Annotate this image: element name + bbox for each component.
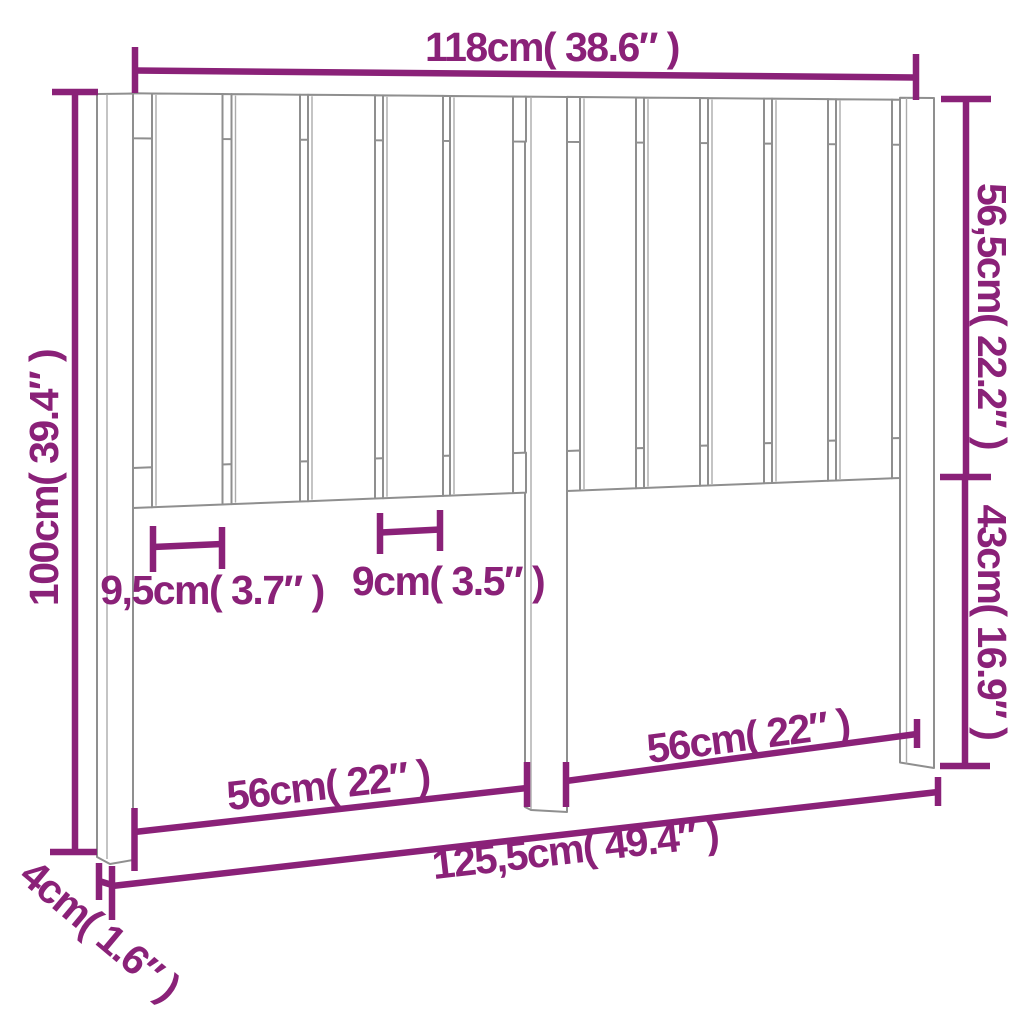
dim-line-top-width — [135, 71, 916, 78]
slat-gap-bottom-notch — [700, 446, 708, 486]
slat-gap-bottom-notch — [636, 448, 644, 488]
slat-gap-bottom-notch — [567, 451, 580, 492]
slat-gap-bottom-notch — [300, 461, 308, 501]
slat-gap-bottom-notch — [223, 464, 232, 504]
headboard-slat — [708, 98, 764, 485]
slats-layer — [133, 93, 900, 508]
slat-gap-top-notch — [443, 96, 450, 141]
headboard-slat — [152, 94, 223, 508]
slat-gap-bottom-notch — [375, 458, 383, 498]
slat-gap-top-notch — [700, 98, 708, 143]
slat-gap-top-notch — [513, 97, 526, 142]
headboard-slat — [772, 99, 828, 483]
dim-label-wide-slat-width: 9,5cm( 3.7″ ) — [100, 567, 323, 613]
slat-gap-top-notch — [636, 98, 644, 143]
slat-gap-top-notch — [375, 95, 383, 140]
dim-line-wide-slat — [153, 544, 222, 547]
slat-gap-top-notch — [300, 95, 308, 140]
headboard-slat — [836, 99, 892, 480]
headboard-slat — [580, 97, 636, 491]
headboard-slat — [450, 96, 513, 496]
slat-gap-bottom-notch — [828, 441, 836, 481]
slat-gap-top-notch — [133, 93, 152, 138]
dim-label-lower-section-height: 43cm( 16.9″ ) — [969, 505, 1015, 740]
diagram-canvas: 118cm( 38.6″ ) 56,5cm( 22.2″ ) 43cm( 16.… — [0, 0, 1024, 1024]
left-post — [97, 94, 133, 865]
dim-label-top-width: 118cm( 38.6″ ) — [425, 24, 679, 70]
dim-label-upper-section-height: 56,5cm( 22.2″ ) — [969, 183, 1015, 449]
slat-gap-bottom-notch — [764, 443, 772, 483]
slat-gap-top-notch — [567, 97, 580, 142]
headboard-slat — [383, 95, 443, 498]
headboard-slat — [644, 98, 700, 488]
dim-line-post-thickness — [99, 881, 112, 885]
slat-gap-top-notch — [764, 99, 772, 144]
headboard-slat — [308, 95, 375, 501]
slat-gap-bottom-notch — [513, 453, 526, 494]
slat-gap-top-notch — [223, 94, 232, 139]
slat-gap-bottom-notch — [892, 438, 900, 478]
headboard-dimension-diagram: 118cm( 38.6″ ) 56,5cm( 22.2″ ) 43cm( 16.… — [0, 0, 1024, 1024]
dim-label-total-width: 125,5cm( 49.4″ ) — [430, 810, 721, 888]
headboard-slat — [232, 94, 301, 504]
slat-gap-top-notch — [892, 100, 900, 145]
dim-label-total-height: 100cm( 39.4″ ) — [21, 350, 67, 606]
dim-label-narrow-slat-width: 9cm( 3.5″ ) — [352, 558, 544, 604]
dim-line-narrow-slat — [380, 530, 440, 533]
slat-gap-bottom-notch — [133, 467, 152, 508]
slat-gap-bottom-notch — [443, 456, 450, 496]
dim-label-right-section-width: 56cm( 22″ ) — [644, 700, 852, 772]
slat-gap-top-notch — [828, 99, 836, 144]
right-post — [900, 98, 934, 768]
